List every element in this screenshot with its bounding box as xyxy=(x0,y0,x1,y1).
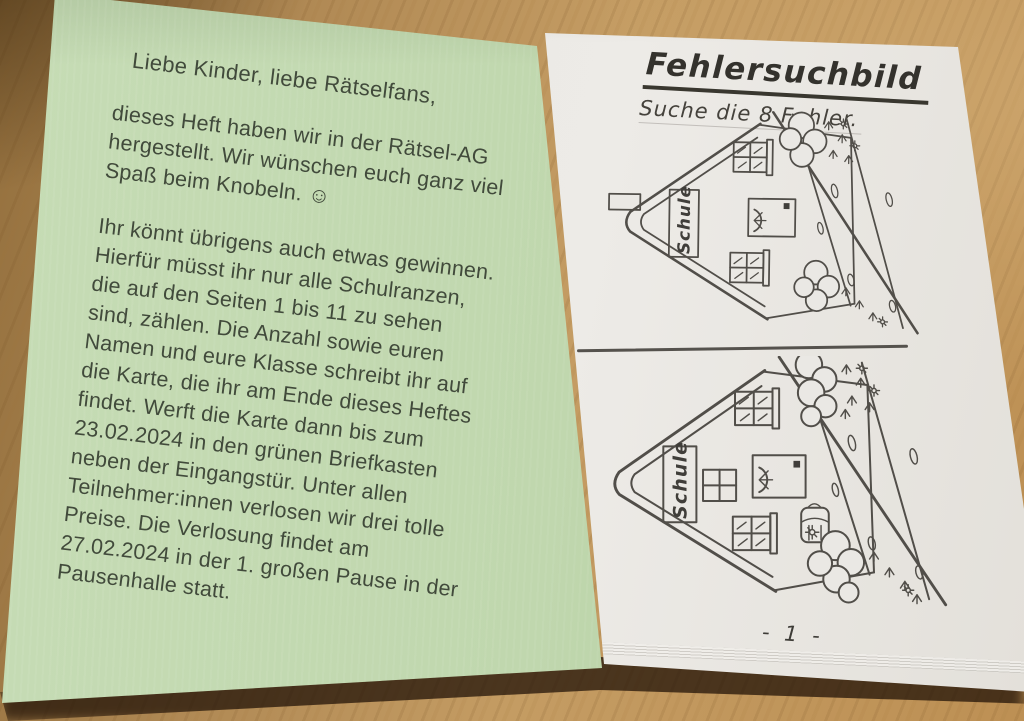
flowers xyxy=(836,119,891,327)
schule-sign: Schule xyxy=(669,185,699,257)
house-corner-edge xyxy=(849,138,857,304)
intro-paragraph: dieses Heft haben wir in der Rätsel-AG h… xyxy=(103,99,511,233)
window-top xyxy=(733,139,773,175)
drawing-divider-line xyxy=(577,345,908,352)
body-paragraph: Ihr könnt übrigens auch etwas gewinnen. … xyxy=(56,212,498,634)
page-title: Fehlersuchbild xyxy=(643,46,931,105)
left-page-text-block: Liebe Kinder, liebe Rätselfans, dieses H… xyxy=(56,46,518,634)
door-handle xyxy=(784,203,790,209)
bush-top xyxy=(796,356,837,426)
roof xyxy=(615,371,776,592)
window-bottom xyxy=(730,250,770,286)
photo-of-open-booklet: Liebe Kinder, liebe Rätselfans, dieses H… xyxy=(0,0,1024,721)
schule-sign: Schule xyxy=(663,441,696,522)
door-handle xyxy=(793,461,800,468)
window-top xyxy=(735,388,779,428)
page-number: - 1 - xyxy=(761,620,824,648)
bush-bottom xyxy=(794,260,840,311)
bush-top xyxy=(779,112,827,167)
window-middle-extra xyxy=(703,470,736,501)
schule-sign-text: Schule xyxy=(674,185,694,254)
window-bottom xyxy=(733,513,777,553)
spot-difference-drawing-1: Schule xyxy=(598,109,923,335)
door xyxy=(748,199,795,237)
door xyxy=(753,455,806,497)
spot-difference-drawing-2: Schule xyxy=(585,356,949,607)
house-drawing: Schule xyxy=(607,110,920,333)
schule-sign-text: Schule xyxy=(671,441,692,519)
house-drawing: Schule xyxy=(615,356,946,605)
